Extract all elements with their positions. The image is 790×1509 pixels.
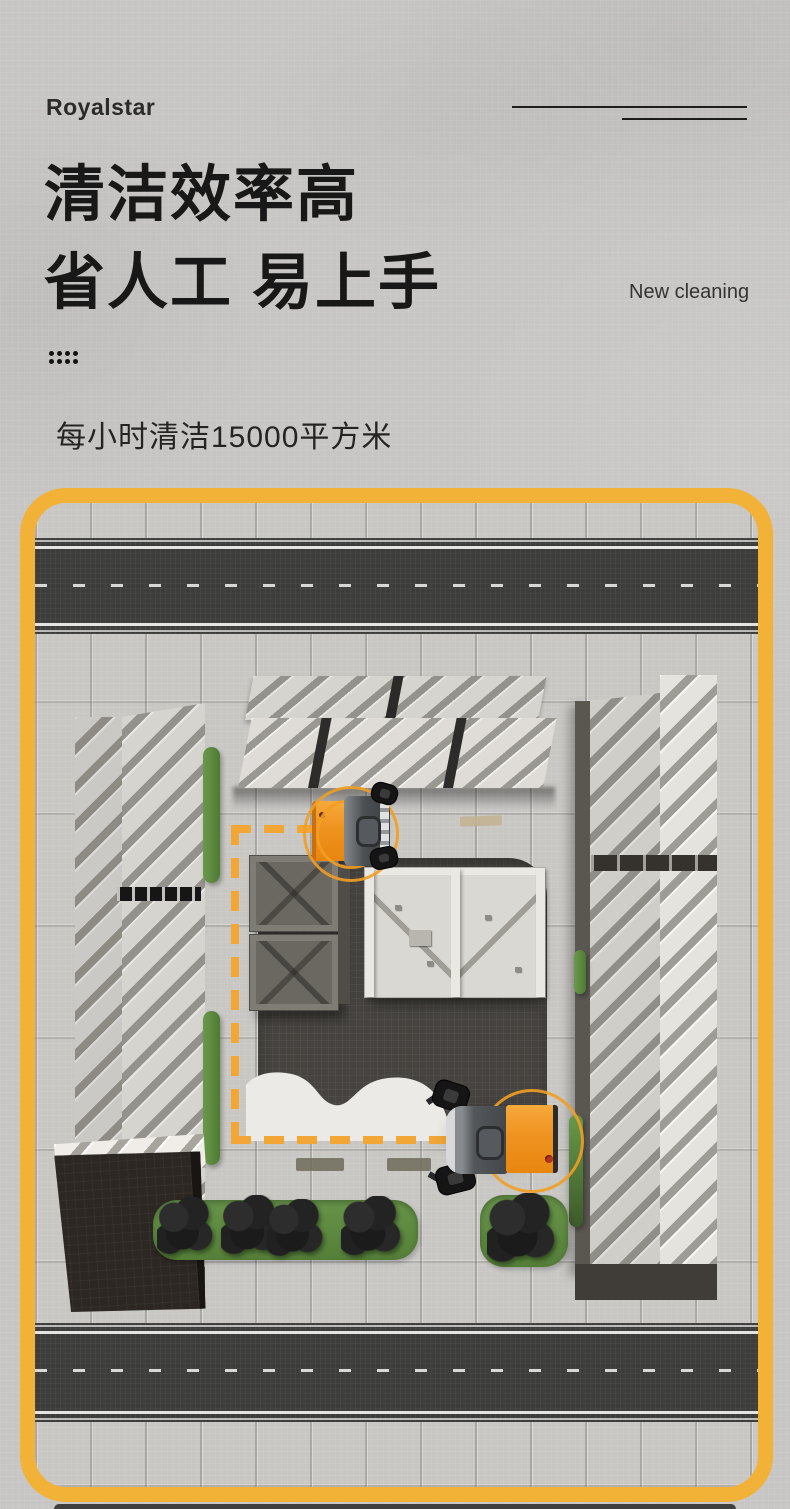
pavement-mark — [296, 1158, 344, 1171]
top-building-main-row — [238, 718, 557, 788]
headline: 清洁效率高省人工 易上手 — [44, 150, 441, 326]
storage-beam — [536, 868, 545, 997]
road-edge-line — [35, 540, 758, 542]
sweeper-roof-hatch — [356, 816, 381, 847]
road-center-dashes — [35, 1369, 758, 1372]
sweeper-roof-hatch — [476, 1126, 504, 1160]
cleaning-route-dash-vertical — [231, 825, 239, 1144]
tree — [157, 1197, 213, 1255]
top-building-upper-row — [245, 676, 547, 720]
storage-beam — [365, 868, 374, 997]
hedge-strip — [203, 747, 220, 883]
marketing-page: Royalstar 清洁效率高省人工 易上手 New cleaning 每小时清… — [0, 0, 790, 1509]
roof-section-gap — [443, 718, 467, 788]
white-curved-patch — [246, 1059, 450, 1141]
storage-screw — [485, 915, 491, 920]
right-building-slab-inner — [590, 693, 660, 1300]
sweeper-robot-top — [311, 786, 397, 872]
hedge-strip — [574, 950, 586, 994]
crate-bottom — [250, 935, 338, 1010]
storage-beam — [451, 868, 460, 997]
sweeper-robot-bottom — [428, 1081, 566, 1196]
headline-line-1: 清洁效率高 — [44, 150, 441, 238]
storage-screw — [395, 905, 401, 910]
brand-logo: Royalstar — [46, 94, 155, 121]
tree — [267, 1199, 323, 1257]
subtitle-stat: 每小时清洁15000平方米 — [56, 412, 392, 456]
pavement-tan-mark — [460, 815, 502, 826]
storage-screw — [515, 967, 521, 972]
decor-line-short — [622, 118, 747, 120]
white-curve-shape — [246, 1059, 450, 1141]
storage-hatch-box — [409, 930, 431, 946]
road-center-dashes — [35, 584, 758, 587]
tree — [341, 1196, 401, 1256]
road-edge-line — [35, 630, 758, 632]
tagline-en: New cleaning — [629, 281, 749, 304]
right-building-ledge — [591, 855, 717, 871]
right-building-base — [575, 1264, 717, 1300]
next-section-edge — [54, 1504, 736, 1509]
road-edge-line — [35, 1331, 758, 1334]
road-bottom — [35, 1323, 758, 1422]
road-top — [35, 538, 758, 634]
storage-screw — [427, 961, 433, 966]
scene-frame — [20, 488, 773, 1502]
roof-section-gap — [385, 676, 404, 720]
storage-section-right — [460, 875, 536, 997]
cleaning-route-dash-bottom — [231, 1136, 459, 1144]
aerial-scene — [35, 503, 758, 1487]
roof-section-gap — [308, 718, 332, 788]
decor-line-long — [512, 106, 747, 108]
left-building-window-band — [117, 887, 201, 901]
right-building — [575, 675, 717, 1300]
headline-line-2: 省人工 易上手 — [44, 238, 441, 326]
right-building-slab-outer — [660, 675, 717, 1300]
road-edge-line — [35, 546, 758, 549]
white-storage-structure — [365, 868, 545, 997]
road-edge-line — [35, 623, 758, 626]
road-edge-line — [35, 1325, 758, 1327]
tree — [487, 1193, 555, 1263]
road-edge-line — [35, 1418, 758, 1420]
dots-grid-icon — [49, 351, 78, 364]
road-edge-line — [35, 1411, 758, 1414]
crate-side-boxes — [338, 864, 350, 1004]
pavement-mark — [387, 1158, 431, 1171]
hedge-strip — [203, 1011, 220, 1165]
sweeper-wheel — [369, 846, 399, 871]
hopper-red-dot — [545, 1155, 553, 1163]
